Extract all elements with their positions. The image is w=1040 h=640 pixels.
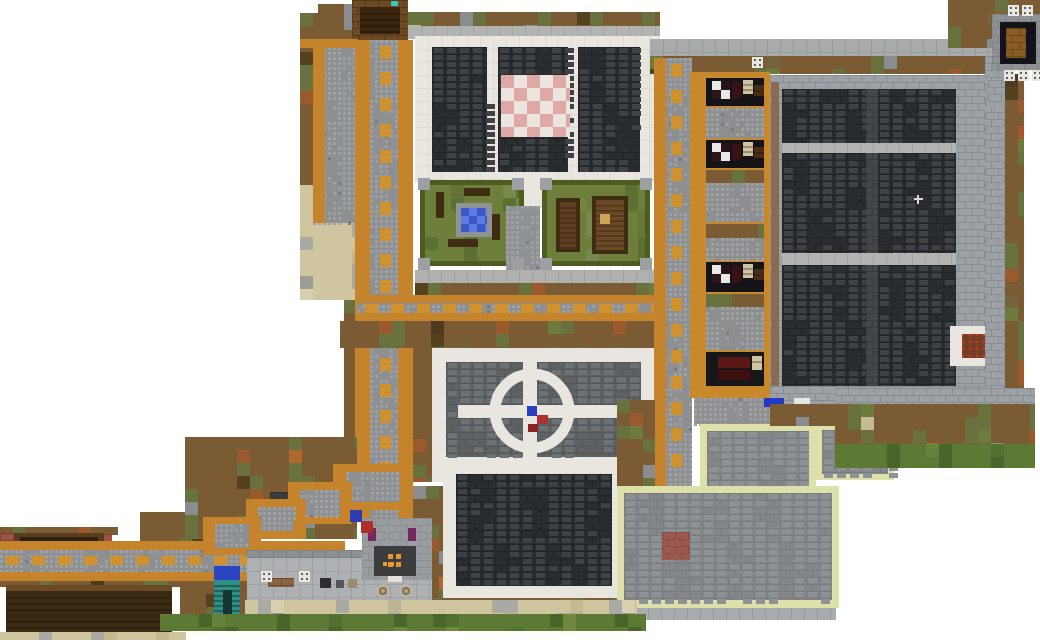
map-figure [0, 0, 1040, 640]
town-map-canvas [0, 0, 1040, 640]
